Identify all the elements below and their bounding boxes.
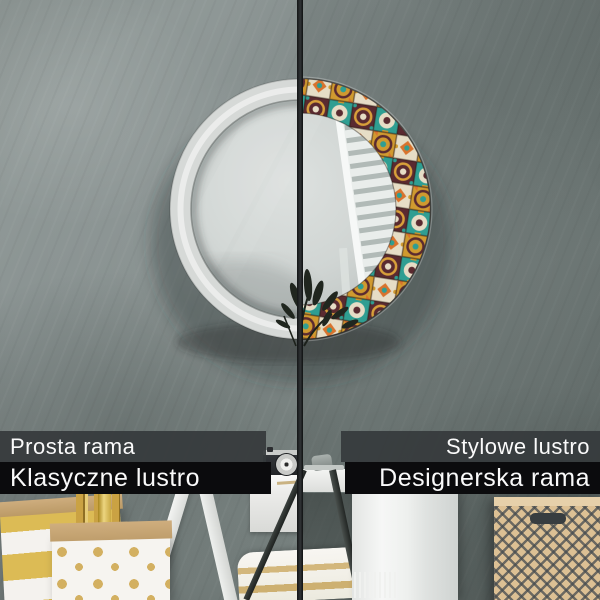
label-bar-left-bottom: Klasyczne lustro: [0, 462, 271, 494]
label-right-line2: Designerska rama: [379, 464, 590, 493]
metal-object-base: [304, 465, 344, 470]
split-divider-line: [297, 0, 303, 600]
label-bar-right-bottom: Designerska rama: [345, 462, 600, 494]
label-bar-right-top: Stylowe lustro: [341, 431, 600, 462]
rack-top-bar: [303, 469, 347, 492]
towel-fringe: [354, 572, 396, 598]
product-photo: Prosta rama Klasyczne lustro Stylowe lus…: [0, 0, 600, 600]
label-left-line2: Klasyczne lustro: [10, 464, 200, 493]
label-left-line1: Prosta rama: [10, 434, 135, 460]
label-right-line1: Stylowe lustro: [446, 434, 590, 460]
label-bar-left-top: Prosta rama: [0, 431, 266, 462]
polka-dot-gift-bag: [52, 536, 170, 600]
camera-lens: [276, 454, 297, 475]
basket-handle: [530, 513, 566, 524]
camera-knob: [267, 447, 273, 452]
